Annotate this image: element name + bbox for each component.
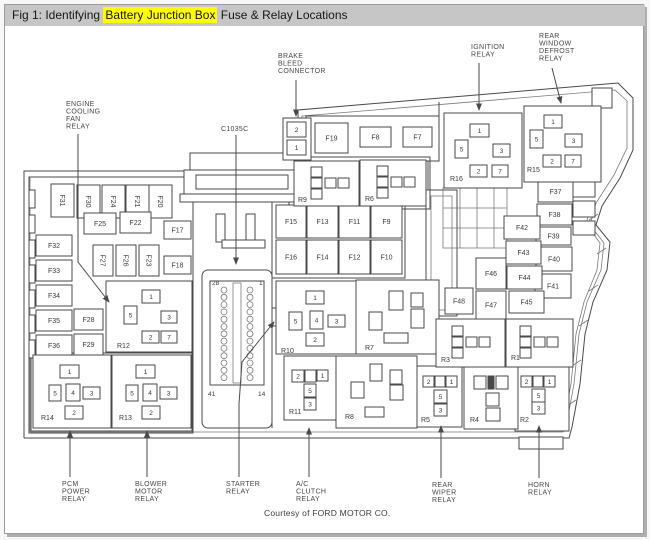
fuse-label: F8 xyxy=(371,135,379,142)
credit-text: Courtesy of FORD MOTOR CO. xyxy=(264,508,390,518)
relay-label: R1 xyxy=(511,355,520,362)
component-box xyxy=(29,240,35,258)
relay-pin-number: 5 xyxy=(439,394,443,401)
relay-pin-number: 1 xyxy=(68,369,72,376)
component-box xyxy=(29,265,35,283)
relay-pin-number: 2 xyxy=(296,374,300,381)
fuse-F42: F42 xyxy=(504,216,540,239)
fuse-F47: F47 xyxy=(476,291,506,319)
callout-brake-bleed-connector: BRAKEBLEEDCONNECTOR xyxy=(278,53,326,116)
relay-R7: R7 xyxy=(356,280,439,354)
relay-pin-number: 3 xyxy=(167,315,171,322)
fuse-label: F24 xyxy=(109,195,116,207)
fuse-label: F9 xyxy=(382,219,390,226)
callout-text: HORNRELAY xyxy=(528,482,552,497)
relay-pin xyxy=(474,376,486,389)
relay-pin xyxy=(377,188,388,198)
fuse-label: F10 xyxy=(380,255,392,262)
fuse-F17: F17 xyxy=(164,221,191,239)
relay-R6: R6 xyxy=(360,160,426,206)
relay-pin xyxy=(466,337,477,347)
callout-text: C1035C xyxy=(221,126,248,133)
component-box xyxy=(29,290,35,308)
fuse-label: F25 xyxy=(94,221,106,228)
fuse-label: F21 xyxy=(133,195,140,207)
relay-pin-number: 1 xyxy=(551,119,555,126)
callout-text: PCMPOWERRELAY xyxy=(62,481,90,503)
component-box xyxy=(573,181,595,197)
relay-pin xyxy=(390,385,403,400)
component-box xyxy=(519,437,563,449)
relay-pin xyxy=(311,189,322,199)
relay-R4: R4 xyxy=(464,366,518,429)
relay-pin-number: 5 xyxy=(53,391,57,398)
relay-pin xyxy=(486,408,500,421)
relay-pin-number: 2 xyxy=(313,337,317,344)
fuse-F35: F35 xyxy=(36,310,72,331)
relay-pin-number: 7 xyxy=(498,169,502,176)
relay-R2: R22153 xyxy=(515,366,569,431)
component-box xyxy=(573,221,595,235)
relay-pin-number: 3 xyxy=(335,319,339,326)
fuse-label: F18 xyxy=(171,263,183,270)
fuse-F14: F14 xyxy=(307,240,338,274)
callout-text: BRAKEBLEEDCONNECTOR xyxy=(278,53,326,75)
relay-R11: R112153 xyxy=(284,356,338,420)
fuse-F48: F48 xyxy=(445,288,473,314)
fuse-F34: F34 xyxy=(36,285,72,306)
relay-pin-number: 1 xyxy=(548,379,552,386)
relay-pin xyxy=(377,166,388,176)
relay-pin xyxy=(370,364,382,381)
relay-pin-number: 3 xyxy=(572,138,576,145)
component-box xyxy=(246,214,255,242)
fuse-F15: F15 xyxy=(276,205,306,238)
relay-pin xyxy=(411,293,423,307)
relay-pin xyxy=(411,309,424,328)
relay-pin-number: 2 xyxy=(149,335,153,342)
component-box xyxy=(592,88,612,108)
fuse-F20: F20 xyxy=(149,185,172,218)
fuse-label: F30 xyxy=(84,195,91,207)
fuse-F43: F43 xyxy=(506,241,541,264)
fuse-label: F32 xyxy=(48,243,60,250)
relay-pin xyxy=(452,348,463,358)
fuse-F46: F46 xyxy=(476,258,506,289)
relay-pin-number: 2 xyxy=(427,379,431,386)
relay-R12: R1215327 xyxy=(106,281,192,352)
relay-pin xyxy=(452,337,463,347)
fuse-F29: F29 xyxy=(74,334,103,355)
relay-R3: R3 xyxy=(436,319,505,367)
relay-label: R5 xyxy=(421,417,430,424)
fuse-F44: F44 xyxy=(507,266,542,289)
relay-pin-number: 5 xyxy=(535,137,539,144)
fuse-F8: F8 xyxy=(360,127,391,147)
relay-pin-number: 1 xyxy=(149,294,153,301)
relay-label: R16 xyxy=(450,176,463,183)
relay-label: R13 xyxy=(119,415,132,422)
relay-pin-number: 3 xyxy=(439,408,443,415)
relay-pin-number: 5 xyxy=(308,388,312,395)
callout-rear-window-defrost-relay: REARWINDOWDEFROSTRELAY xyxy=(539,33,575,103)
relay-pin xyxy=(338,178,349,188)
fuse-F27: F27 xyxy=(93,245,113,276)
fuse-F28: F28 xyxy=(74,309,103,330)
relay-pin-number: 1 xyxy=(321,373,325,380)
relay-R9: R9 xyxy=(294,161,359,206)
relay-pin-number: 1 xyxy=(295,145,299,152)
fuse-label: F42 xyxy=(516,225,528,232)
relay-pin xyxy=(351,382,364,398)
callout-ignition-relay: IGNITIONRELAY xyxy=(471,44,505,110)
relay-pin xyxy=(486,393,499,406)
relay-pin xyxy=(390,370,402,384)
callout-text: BLOWERMOTORRELAY xyxy=(135,481,167,503)
relay-pin-number: 5 xyxy=(537,393,541,400)
fuse-label: F43 xyxy=(517,250,529,257)
fuse-label: F26 xyxy=(122,254,129,266)
relay-pin-number: 7 xyxy=(571,159,575,166)
fuse-label: F48 xyxy=(453,299,465,306)
fuse-F38: F38 xyxy=(537,204,572,225)
relay-R15: R1515327 xyxy=(524,106,601,182)
relay-pin-number: 4 xyxy=(148,390,152,397)
callout-pcm-power-relay: PCMPOWERRELAY xyxy=(62,431,90,503)
fuse-label: F36 xyxy=(48,343,60,350)
relay-R5: R52153 xyxy=(416,366,462,427)
fuse-label: F37 xyxy=(549,189,561,196)
callout-blower-motor-relay: BLOWERMOTORRELAY xyxy=(135,431,167,503)
fuse-label: F35 xyxy=(48,318,60,325)
relay-pin-number: 5 xyxy=(294,319,298,326)
fuse-label: F46 xyxy=(485,271,497,278)
callout-leader-line xyxy=(552,68,561,103)
fuse-label: F27 xyxy=(99,254,106,266)
relay-label: R8 xyxy=(345,414,354,421)
relay-pin-number: 2 xyxy=(295,127,299,134)
fuse-label: F19 xyxy=(325,136,337,143)
relay-label: R6 xyxy=(365,196,374,203)
fuse-F9: F9 xyxy=(371,205,402,238)
relay-pin-number: 3 xyxy=(308,402,312,409)
fuse-label: F16 xyxy=(285,255,297,262)
relay-pin-number: 4 xyxy=(71,390,75,397)
fuse-F26: F26 xyxy=(116,245,136,276)
fuse-F37: F37 xyxy=(538,181,573,202)
component-box xyxy=(573,201,595,217)
callout-text: A/CCLUTCHRELAY xyxy=(296,481,326,503)
relay-pin-number: 3 xyxy=(537,406,541,413)
brake-bleed-connector-pins: 21 xyxy=(283,118,311,160)
fuse-F36: F36 xyxy=(36,335,72,356)
relay-label: R3 xyxy=(441,357,450,364)
callout-text: STARTERRELAY xyxy=(226,481,260,496)
relay-pin xyxy=(384,333,408,343)
relay-R8: R8 xyxy=(336,356,417,428)
relay-pin-number: 1 xyxy=(313,295,317,302)
relay-pin xyxy=(369,312,382,330)
relay-pin-number: 2 xyxy=(550,159,554,166)
relay-label: R10 xyxy=(281,348,294,355)
relay-pin-number: 5 xyxy=(130,391,134,398)
fuse-label: F34 xyxy=(48,293,60,300)
fuse-label: F45 xyxy=(520,300,532,307)
relay-label: R12 xyxy=(117,343,130,350)
relay-pin-number: 2 xyxy=(149,410,153,417)
relay-pin-number: 1 xyxy=(450,379,454,386)
relay-pin-number: 7 xyxy=(167,335,171,342)
connector-pin-number: 14 xyxy=(258,391,266,398)
relay-pin xyxy=(391,177,402,187)
relay-pin xyxy=(404,177,415,187)
fuse-label: F13 xyxy=(316,219,328,226)
fuse-F22: F22 xyxy=(120,212,151,233)
callout-text: IGNITIONRELAY xyxy=(471,44,505,59)
fuse-F25: F25 xyxy=(84,213,116,234)
relay-pin xyxy=(435,376,445,387)
relay-label: R7 xyxy=(365,345,374,352)
relay-pin-number: 1 xyxy=(478,128,482,135)
connector-pin-number: 1 xyxy=(259,280,263,287)
fuse-label: F40 xyxy=(548,257,560,264)
fuse-F32: F32 xyxy=(36,235,72,256)
fuse-F12: F12 xyxy=(339,240,370,274)
relay-pin xyxy=(452,326,463,336)
fuse-label: F17 xyxy=(171,228,183,235)
fuse-label: F7 xyxy=(413,135,421,142)
relay-R1: R1 xyxy=(506,319,573,367)
fuse-label: F23 xyxy=(145,254,152,266)
fuse-F31: F31 xyxy=(51,184,74,217)
relay-pin xyxy=(534,337,545,347)
component-box xyxy=(222,240,265,248)
callout-text: ENGINECOOLINGFANRELAY xyxy=(66,101,100,131)
fuse-label: F29 xyxy=(82,342,94,349)
relay-R14: R1415432 xyxy=(33,355,111,428)
relay-pin xyxy=(365,407,384,417)
relay-pin xyxy=(496,376,508,389)
relay-pin-number: 4 xyxy=(315,318,319,325)
component-box xyxy=(29,215,35,233)
fuse-F11: F11 xyxy=(339,205,370,238)
relay-label: R11 xyxy=(289,409,301,416)
fuse-F13: F13 xyxy=(307,205,338,238)
fuse-label: F22 xyxy=(129,220,141,227)
fuse-label: F33 xyxy=(48,268,60,275)
relay-pin-number: 2 xyxy=(72,410,76,417)
component-box xyxy=(29,190,35,208)
relay-label: R14 xyxy=(41,415,54,422)
relay-pin xyxy=(520,337,531,347)
relay-pin xyxy=(547,337,558,347)
relay-pin-number: 3 xyxy=(500,148,504,155)
relay-pin xyxy=(305,370,316,382)
fuse-label: F31 xyxy=(58,194,65,206)
relay-pin-number: 3 xyxy=(167,391,171,398)
fuse-label: F44 xyxy=(518,275,530,282)
c1035c-connector: 2814114 xyxy=(202,270,272,428)
relay-R10: R1015432 xyxy=(276,281,364,355)
relay-pin xyxy=(488,376,494,389)
relay-pin-number: 3 xyxy=(90,391,94,398)
component-box xyxy=(180,194,304,202)
relay-pin xyxy=(325,178,336,188)
relay-label: R2 xyxy=(520,417,529,424)
relay-pin xyxy=(389,291,403,310)
connector-pin-number: 41 xyxy=(208,391,216,398)
relay-pin-number: 1 xyxy=(144,369,148,376)
component-box xyxy=(29,315,35,333)
fuse-F16: F16 xyxy=(276,240,306,274)
fuse-F19: F19 xyxy=(315,123,348,153)
relay-pin-number: 2 xyxy=(477,169,481,176)
relay-pin xyxy=(520,348,531,358)
fuse-label: F38 xyxy=(548,212,560,219)
callout-text: REARWINDOWDEFROSTRELAY xyxy=(539,33,575,63)
relay-pin xyxy=(311,167,322,177)
relay-pin xyxy=(479,337,490,347)
fuse-F7: F7 xyxy=(403,127,432,147)
relay-R13: R1315432 xyxy=(112,355,191,428)
relay-pin xyxy=(533,376,543,387)
relay-label: R15 xyxy=(527,167,540,174)
fuse-label: F47 xyxy=(485,303,497,310)
component-box xyxy=(216,214,225,242)
fuse-box-diagram: 2814114F31F30F24F21F20F25F22F17F27F26F23… xyxy=(0,0,650,540)
component-box xyxy=(196,175,288,189)
callout-ac-clutch-relay: A/CCLUTCHRELAY xyxy=(296,428,326,503)
fuse-label: F11 xyxy=(349,219,361,226)
fuse-label: F28 xyxy=(82,317,94,324)
fuse-label: F39 xyxy=(547,234,559,241)
relay-R16: R1615327 xyxy=(444,113,522,188)
fuse-label: F12 xyxy=(348,255,360,262)
fuse-label: F20 xyxy=(156,195,163,207)
fuse-F33: F33 xyxy=(36,260,72,281)
fuse-F10: F10 xyxy=(371,240,402,274)
fuse-label: F41 xyxy=(547,284,559,291)
fuse-label: F14 xyxy=(316,255,328,262)
relay-pin xyxy=(520,326,531,336)
fuse-F23: F23 xyxy=(139,245,159,276)
relay-label: R4 xyxy=(470,417,479,424)
relay-pin xyxy=(311,178,322,188)
fuse-F18: F18 xyxy=(164,256,191,274)
callout-text: REARWIPERRELAY xyxy=(432,482,456,504)
connector-pin-number: 28 xyxy=(212,280,220,287)
relay-pin-number: 2 xyxy=(525,379,529,386)
relay-pin-number: 5 xyxy=(460,147,464,154)
relay-pin-number: 5 xyxy=(129,313,133,320)
fuse-label: F15 xyxy=(285,219,297,226)
relay-pin xyxy=(377,177,388,187)
fuse-F45: F45 xyxy=(509,291,544,313)
relay-label: R9 xyxy=(298,197,307,204)
